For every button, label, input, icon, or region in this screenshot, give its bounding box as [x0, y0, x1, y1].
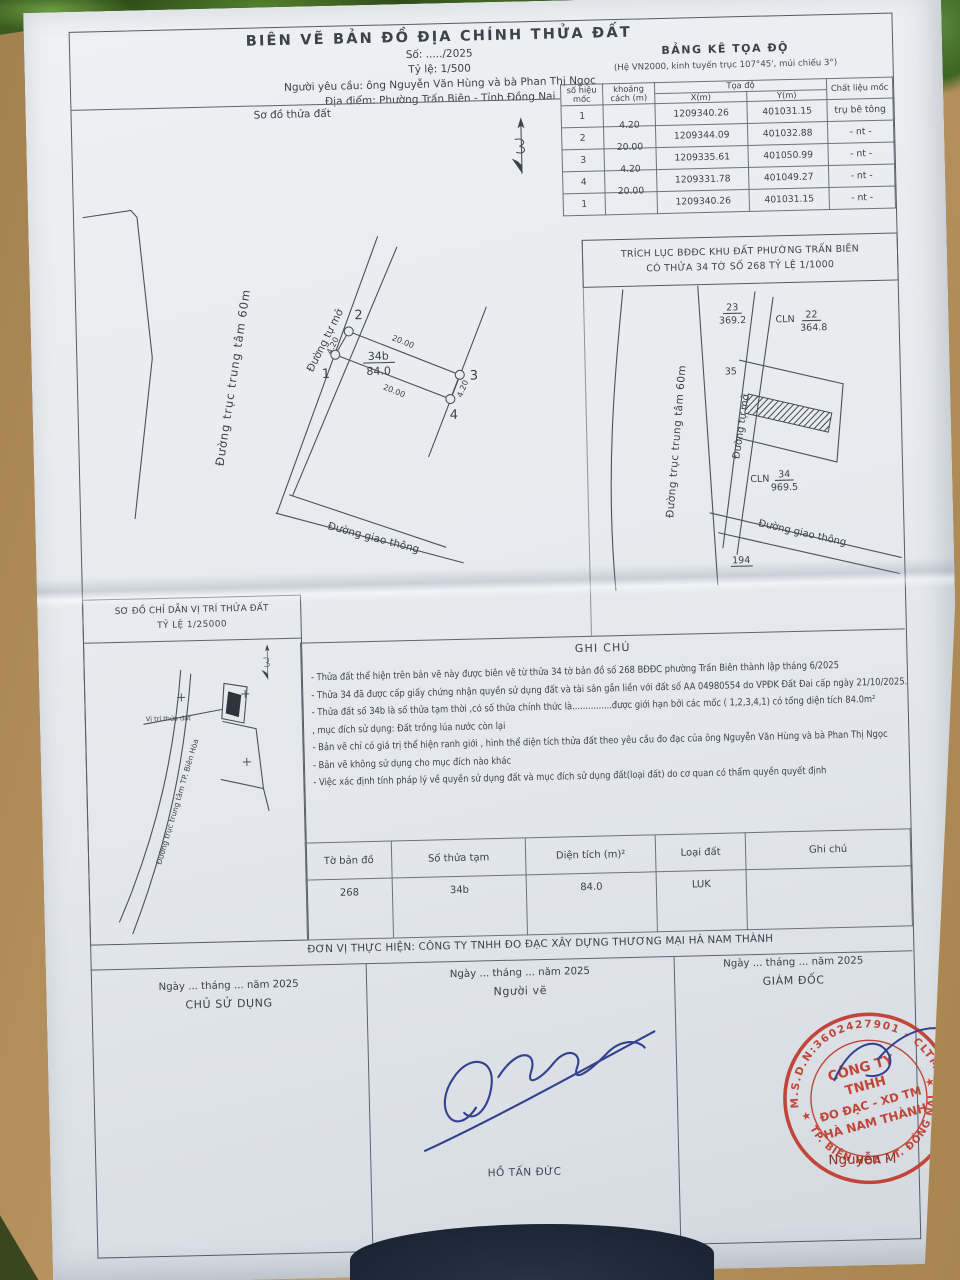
drafter-signature	[402, 1003, 681, 1174]
point-id: 3	[562, 149, 605, 172]
director-name: Nguyễn M	[828, 1151, 896, 1169]
header-temp-parcel: Số thửa tạm	[391, 838, 526, 878]
block-bottom-edge	[739, 436, 837, 464]
point-label-2: 2	[354, 308, 363, 323]
p22-area: 364.8	[800, 322, 827, 334]
parcel-outline-large	[220, 721, 264, 790]
value-land-type: LUK	[656, 870, 747, 932]
point-id: 1	[561, 105, 604, 128]
site-marker	[225, 691, 242, 717]
north-arrow-icon	[511, 117, 526, 173]
location-map-scale: TỶ LỆ 1/25000	[84, 618, 301, 633]
company-stamp: M.S.D.N:3602427901 - CLTM TP. BIÊN HÒA -…	[747, 999, 960, 1204]
p22-id: 22	[805, 309, 817, 320]
location-map: Đường trục trung tâm TP. Biên Hòa Vị trí…	[84, 638, 306, 943]
point-label-3: 3	[470, 368, 479, 383]
header-land-type: Loại đất	[655, 833, 746, 872]
p23-id: 23	[726, 302, 738, 313]
coordinate-table: số hiệu mốc khoảng cách (m) Tọa độ Chất …	[560, 77, 896, 217]
value-note	[746, 866, 912, 930]
distance: 4.20	[603, 104, 656, 127]
road-curve-right	[127, 674, 197, 933]
x-coord: 1209340.26	[655, 102, 747, 126]
n35-label: 35	[725, 366, 737, 377]
axis-road-curve	[606, 290, 630, 590]
point-id: 4	[563, 171, 606, 194]
location-map-title: SƠ ĐỒ CHỈ DẪN VỊ TRÍ THỬA ĐẤT	[83, 603, 300, 618]
point-id: 1	[563, 193, 606, 216]
material: - nt -	[828, 142, 895, 166]
notes-list: - Thửa đất thể hiện trên bản vẽ này được…	[311, 655, 906, 791]
summary-table: Tờ bản đồ Số thửa tạm Diện tích (m)² Loạ…	[305, 828, 913, 940]
x-coord: 1209331.78	[657, 168, 749, 192]
dim-top: 20.00	[391, 333, 416, 350]
y-coord: 401031.15	[749, 188, 829, 212]
material: - nt -	[829, 186, 896, 210]
x-coord: 1209335.61	[656, 146, 748, 170]
header-area: Diện tích (m)²	[525, 835, 656, 875]
y-coord: 401049.27	[748, 166, 828, 190]
material: - nt -	[827, 120, 894, 144]
point-label-1: 1	[322, 367, 331, 382]
subject-parcel-hatch	[744, 392, 832, 434]
col-distance-header: khoảng cách (m)	[602, 83, 654, 105]
photo-of-document: BIÊN VẼ BẢN ĐỒ ĐỊA CHÍNH THỬA ĐẤT Số: ..…	[0, 0, 960, 1280]
boundary-line	[698, 286, 718, 585]
cadastral-sheet: BIÊN VẼ BẢN ĐỒ ĐỊA CHÍNH THỬA ĐẤT Số: ..…	[23, 0, 960, 1280]
value-map-sheet: 268	[306, 878, 393, 940]
p34-id: 34	[778, 469, 790, 480]
road-traffic-label: Đường giao thông	[326, 520, 420, 555]
axis-road-label: Đường trục trung tâm 60m	[664, 364, 688, 518]
parcel-id: 34b	[368, 349, 389, 362]
header-map-sheet: Tờ bản đồ	[305, 841, 392, 880]
y-coord: 401032.88	[747, 122, 827, 146]
value-temp-parcel: 34b	[392, 875, 527, 938]
p22-type: CLN	[775, 314, 794, 325]
parcel-area: 84.0	[366, 364, 391, 378]
site-marker-label: Vị trí thửa đất	[146, 714, 192, 723]
n194-label: 194	[732, 555, 750, 566]
p34-area: 969.5	[771, 482, 798, 494]
col-point-header: số hiệu mốc	[560, 84, 602, 106]
north-arrow-icon	[261, 644, 270, 679]
x-coord: 1209344.09	[655, 124, 747, 148]
director-column: Ngày ... tháng ... năm 2025 GIÁM ĐỐC	[674, 954, 914, 990]
y-coord: 401031.15	[747, 100, 827, 124]
header-note: Ghi chú	[745, 829, 911, 870]
plot-sketch: Đường trục trung tâm 60m Đường tự mở 1 2…	[71, 108, 572, 596]
value-area: 84.0	[526, 872, 657, 935]
road-label: Đường trục trung tâm TP. Biên Hòa	[154, 738, 200, 866]
material: - nt -	[828, 164, 895, 188]
extract-sketch: Đường trục trung tâm 60m Đường tự mở 35 …	[583, 278, 904, 595]
material: trụ bê tông	[827, 98, 894, 122]
dim-bottom: 20.00	[382, 383, 407, 400]
stamp-star-left: ★	[800, 1108, 813, 1123]
traffic-road-label: Đường giao thông	[757, 517, 847, 548]
p34-type: CLN	[750, 474, 769, 485]
p23-area: 369.2	[719, 315, 746, 327]
road-axis-label: Đường trục trung tâm 60m	[212, 288, 253, 467]
block-right-edge	[835, 384, 845, 462]
road-axis-line	[83, 210, 156, 519]
point-id: 2	[562, 127, 605, 150]
y-coord: 401050.99	[748, 144, 828, 168]
stamp-star-right: ★	[923, 1075, 936, 1090]
point-label-4: 4	[450, 408, 459, 423]
col-material-header: Chất liệu mốc	[826, 77, 892, 100]
x-coord: 1209340.26	[657, 190, 749, 214]
block-top-edge	[740, 358, 844, 386]
